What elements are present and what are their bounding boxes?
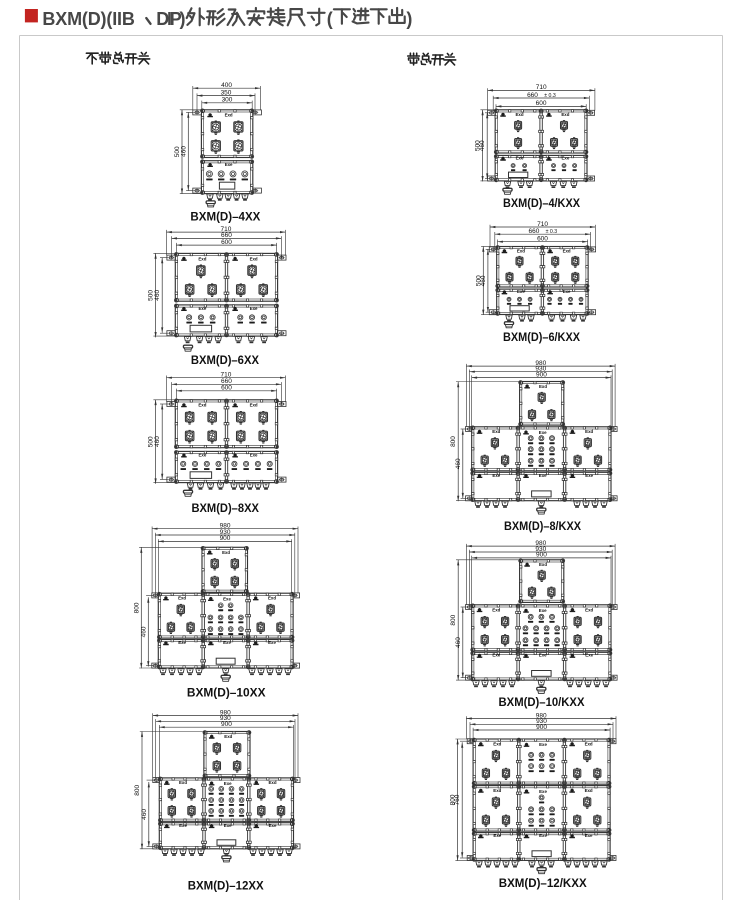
svg-text:Exd: Exd: [492, 429, 500, 434]
svg-text:Exd: Exd: [198, 256, 206, 261]
svg-text:Exd: Exd: [178, 596, 186, 601]
svg-text:BXM(D)–4/KXX: BXM(D)–4/KXX: [503, 196, 580, 210]
svg-text:(: (: [327, 9, 333, 29]
svg-text:Exd: Exd: [515, 112, 523, 117]
svg-text:Exe: Exe: [493, 833, 501, 838]
svg-text:900: 900: [536, 552, 547, 559]
svg-text:Exd: Exd: [539, 562, 547, 567]
svg-text:Exe: Exe: [492, 473, 500, 478]
svg-text:): ): [406, 9, 412, 29]
svg-text:Exe: Exe: [563, 289, 571, 294]
svg-text:900: 900: [536, 371, 547, 378]
svg-text:300: 300: [222, 97, 233, 104]
svg-text:Exe: Exe: [268, 640, 276, 645]
svg-text:460: 460: [154, 289, 161, 300]
svg-text:Exe: Exe: [539, 833, 547, 838]
svg-text:Exd: Exd: [225, 113, 233, 118]
svg-text:Exe: Exe: [516, 156, 524, 161]
svg-text:600: 600: [537, 236, 548, 243]
svg-text:760: 760: [454, 794, 461, 805]
svg-text:BXM(D)–6/KXX: BXM(D)–6/KXX: [503, 330, 580, 344]
svg-text:Exd: Exd: [224, 734, 232, 739]
svg-text:350: 350: [221, 89, 232, 96]
svg-text:Exe: Exe: [585, 833, 593, 838]
svg-text:Exe: Exe: [269, 823, 277, 828]
svg-text:600: 600: [536, 100, 547, 107]
svg-text:Exe: Exe: [539, 742, 547, 747]
svg-text:Exd: Exd: [198, 403, 206, 408]
svg-text:Exe: Exe: [539, 653, 547, 658]
svg-text:Exd: Exd: [222, 550, 230, 555]
svg-text:Exe: Exe: [179, 823, 187, 828]
svg-text:Exe: Exe: [539, 473, 547, 478]
svg-text:Exe: Exe: [198, 306, 206, 311]
svg-text:800: 800: [450, 436, 457, 447]
svg-text:400: 400: [221, 82, 232, 89]
svg-text:600: 600: [221, 385, 232, 392]
svg-text:800: 800: [450, 614, 457, 625]
svg-text:460: 460: [455, 458, 462, 469]
svg-text:Exe: Exe: [539, 789, 547, 794]
svg-text:800: 800: [133, 602, 140, 613]
svg-text:BXM(D)–8XX: BXM(D)–8XX: [191, 501, 259, 515]
svg-text:DIP): DIP): [156, 9, 185, 29]
svg-text:Exe: Exe: [198, 452, 206, 457]
svg-text:BXM(D)–4XX: BXM(D)–4XX: [190, 209, 260, 223]
svg-text:BXM(D)–12XX: BXM(D)–12XX: [188, 879, 264, 893]
svg-text:Exd: Exd: [250, 256, 258, 261]
svg-text:Exd: Exd: [493, 788, 501, 793]
svg-text:460: 460: [140, 626, 147, 637]
svg-text:Exd: Exd: [268, 780, 276, 785]
svg-text:Exe: Exe: [585, 653, 593, 658]
svg-text:BXM(D)–10XX: BXM(D)–10XX: [187, 685, 266, 699]
svg-text:Exd: Exd: [268, 596, 276, 601]
svg-text:900: 900: [220, 535, 231, 542]
svg-text:Exd: Exd: [517, 248, 525, 253]
svg-text:Exe: Exe: [225, 162, 233, 167]
svg-text:460: 460: [479, 140, 486, 151]
svg-text:Exd: Exd: [563, 248, 571, 253]
svg-text:Exd: Exd: [561, 112, 569, 117]
svg-text:Exe: Exe: [224, 781, 232, 786]
svg-text:460: 460: [180, 146, 187, 157]
svg-text:± 0.3: ± 0.3: [544, 93, 556, 99]
svg-text:460: 460: [455, 637, 462, 648]
svg-text:710: 710: [536, 84, 547, 91]
svg-text:900: 900: [536, 724, 547, 731]
svg-text:710: 710: [537, 221, 548, 228]
svg-text:900: 900: [221, 721, 232, 728]
svg-text:Exd: Exd: [585, 429, 593, 434]
svg-text:Exe: Exe: [178, 640, 186, 645]
svg-text:BXM(D)–12/KXX: BXM(D)–12/KXX: [499, 876, 587, 890]
svg-text:Exe: Exe: [492, 653, 500, 658]
svg-text:Exd: Exd: [539, 384, 547, 389]
svg-text:Exe: Exe: [250, 306, 258, 311]
svg-text:660: 660: [528, 228, 539, 235]
svg-text:Exe: Exe: [250, 452, 258, 457]
svg-text:Exe: Exe: [539, 608, 547, 613]
svg-text:460: 460: [154, 436, 161, 447]
svg-text:Exd: Exd: [250, 403, 258, 408]
svg-text:BXM(D)(IIB: BXM(D)(IIB: [42, 9, 134, 29]
svg-text:Exd: Exd: [492, 608, 500, 613]
svg-text:Exe: Exe: [224, 823, 232, 828]
svg-text:660: 660: [527, 92, 538, 99]
svg-text:Exe: Exe: [223, 596, 231, 601]
svg-text:Exe: Exe: [585, 473, 593, 478]
svg-text:Exe: Exe: [539, 430, 547, 435]
svg-text:460: 460: [480, 275, 487, 286]
svg-text:Exe: Exe: [223, 640, 231, 645]
svg-text:Exd: Exd: [585, 742, 593, 747]
svg-text:BXM(D)–8/KXX: BXM(D)–8/KXX: [504, 519, 581, 533]
svg-text:460: 460: [141, 809, 148, 820]
svg-text:Exe: Exe: [561, 156, 569, 161]
svg-text:BXM(D)–6XX: BXM(D)–6XX: [191, 353, 259, 367]
svg-text:BXM(D)–10/KXX: BXM(D)–10/KXX: [499, 695, 585, 709]
svg-text:Exd: Exd: [585, 788, 593, 793]
svg-text:Exd: Exd: [493, 742, 501, 747]
svg-text:Exe: Exe: [517, 289, 525, 294]
svg-text:800: 800: [134, 784, 141, 795]
svg-text:± 0.3: ± 0.3: [546, 229, 558, 235]
svg-text:Exd: Exd: [179, 780, 187, 785]
svg-text:600: 600: [221, 239, 232, 246]
svg-text:Exd: Exd: [585, 608, 593, 613]
